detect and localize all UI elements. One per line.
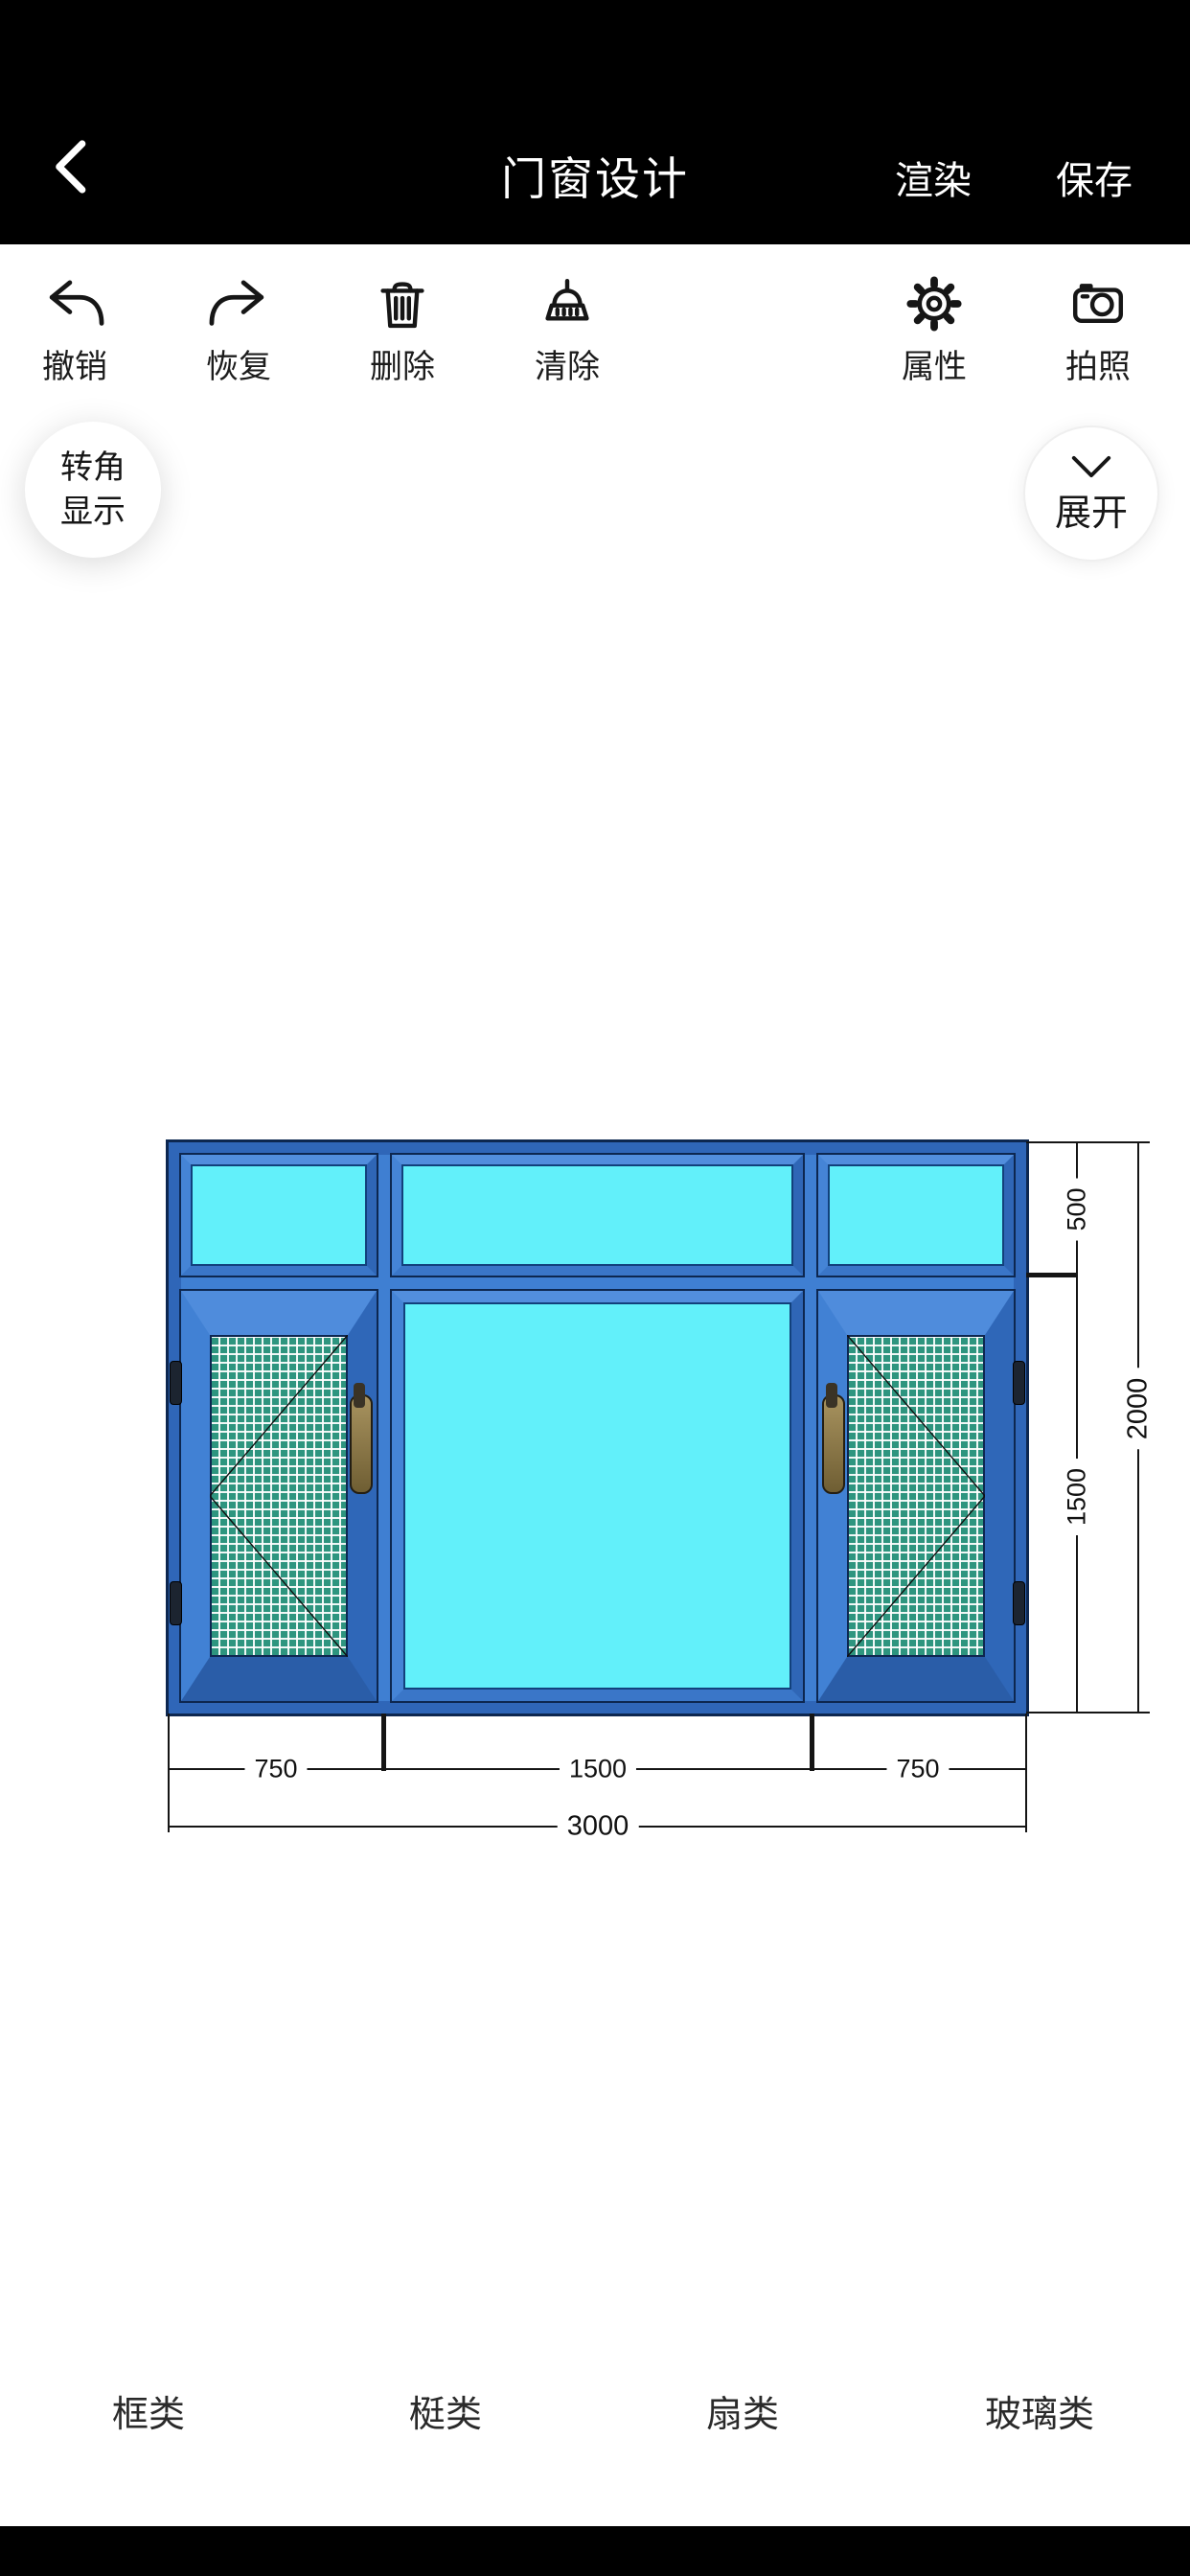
undo-label: 撤销: [10, 340, 140, 387]
corner-display-line2: 显示: [60, 490, 126, 534]
render-button[interactable]: 渲染: [895, 149, 972, 205]
dim-label-750-left[interactable]: 750: [244, 1753, 307, 1786]
broom-icon: [535, 271, 600, 336]
photo-label: 拍照: [1033, 340, 1163, 387]
window-drawing[interactable]: [169, 1142, 1026, 1713]
tab-sashes[interactable]: 扇类: [706, 2384, 779, 2437]
transom-pane-right[interactable]: [818, 1155, 1014, 1276]
undo-button[interactable]: 撤销: [10, 271, 140, 387]
right-opening-direction-lines: [847, 1335, 985, 1657]
redo-icon: [206, 271, 271, 336]
page-title: 门窗设计: [0, 142, 1190, 208]
right-sash[interactable]: [818, 1291, 1014, 1701]
photo-button[interactable]: 拍照: [1033, 271, 1163, 387]
ext-line-mullion-left: [381, 1713, 386, 1771]
clear-button[interactable]: 清除: [502, 271, 632, 387]
clear-label: 清除: [502, 340, 632, 387]
navbar: 门窗设计 渲染 保存: [0, 0, 1190, 244]
chevron-down-icon: [1066, 452, 1116, 481]
ext-line-bottom-right: [1026, 1712, 1150, 1713]
corner-display-button[interactable]: 转角 显示: [25, 422, 161, 558]
expand-button[interactable]: 展开: [1023, 425, 1159, 562]
transom-pane-center[interactable]: [392, 1155, 803, 1276]
ext-line-left: [168, 1713, 170, 1832]
left-screen-mesh: [210, 1335, 348, 1657]
redo-label: 恢复: [173, 340, 304, 387]
save-button[interactable]: 保存: [1056, 149, 1133, 205]
properties-button[interactable]: 属性: [869, 271, 999, 387]
left-sash-handle[interactable]: [350, 1394, 373, 1494]
gear-icon: [902, 271, 967, 336]
corner-display-line1: 转角: [60, 446, 126, 490]
right-hinge-top: [1013, 1361, 1025, 1405]
left-hinge-bottom: [170, 1581, 182, 1625]
ext-line-top-right: [1026, 1141, 1150, 1143]
properties-label: 属性: [869, 340, 999, 387]
ext-line-transom: [1026, 1273, 1078, 1277]
bottom-bar: [0, 2526, 1190, 2576]
left-hinge-top: [170, 1361, 182, 1405]
dim-label-1500-v[interactable]: 1500: [1061, 1459, 1094, 1535]
toolbar: 撤销 恢复 删除: [0, 244, 1190, 415]
undo-icon: [42, 271, 107, 336]
left-handle-base: [354, 1383, 365, 1408]
dim-label-3000[interactable]: 3000: [558, 1809, 639, 1845]
camera-icon: [1065, 271, 1131, 336]
trash-icon: [370, 271, 435, 336]
app-screen: 门窗设计 渲染 保存 撤销 恢复: [0, 0, 1190, 2576]
tab-glass[interactable]: 玻璃类: [985, 2384, 1094, 2437]
dim-label-500[interactable]: 500: [1061, 1178, 1094, 1240]
dim-label-750-right[interactable]: 750: [886, 1753, 949, 1786]
dim-label-2000[interactable]: 2000: [1121, 1368, 1156, 1450]
expand-label: 展开: [1055, 483, 1128, 536]
right-sash-handle[interactable]: [822, 1394, 845, 1494]
transom-pane-left[interactable]: [181, 1155, 377, 1276]
right-hinge-bottom: [1013, 1581, 1025, 1625]
tab-mullions[interactable]: 梃类: [409, 2384, 482, 2437]
tab-frames[interactable]: 框类: [112, 2384, 185, 2437]
ext-line-mullion-right: [810, 1713, 814, 1771]
dim-label-1500-h[interactable]: 1500: [560, 1753, 636, 1786]
fixed-glass-pane[interactable]: [392, 1291, 803, 1701]
right-screen-mesh: [847, 1335, 985, 1657]
redo-button[interactable]: 恢复: [173, 271, 304, 387]
delete-label: 删除: [337, 340, 468, 387]
ext-line-right: [1025, 1713, 1027, 1832]
delete-button[interactable]: 删除: [337, 271, 468, 387]
left-sash[interactable]: [181, 1291, 377, 1701]
left-opening-direction-lines: [210, 1335, 348, 1657]
category-tabbar: 框类 梃类 扇类 玻璃类: [0, 2367, 1190, 2444]
right-handle-base: [826, 1383, 837, 1408]
window-grid: [181, 1155, 1014, 1701]
